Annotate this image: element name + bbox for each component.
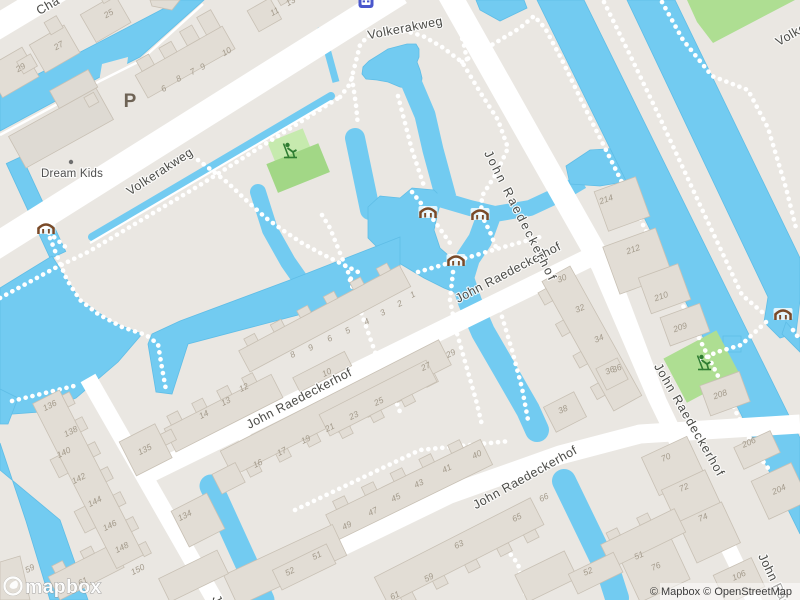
svg-text:© Mapbox © OpenStreetMap: © Mapbox © OpenStreetMap	[650, 586, 792, 598]
svg-text:P: P	[124, 91, 137, 112]
svg-text:mapbox: mapbox	[25, 576, 102, 598]
svg-text:Dream Kids: Dream Kids	[41, 168, 103, 180]
